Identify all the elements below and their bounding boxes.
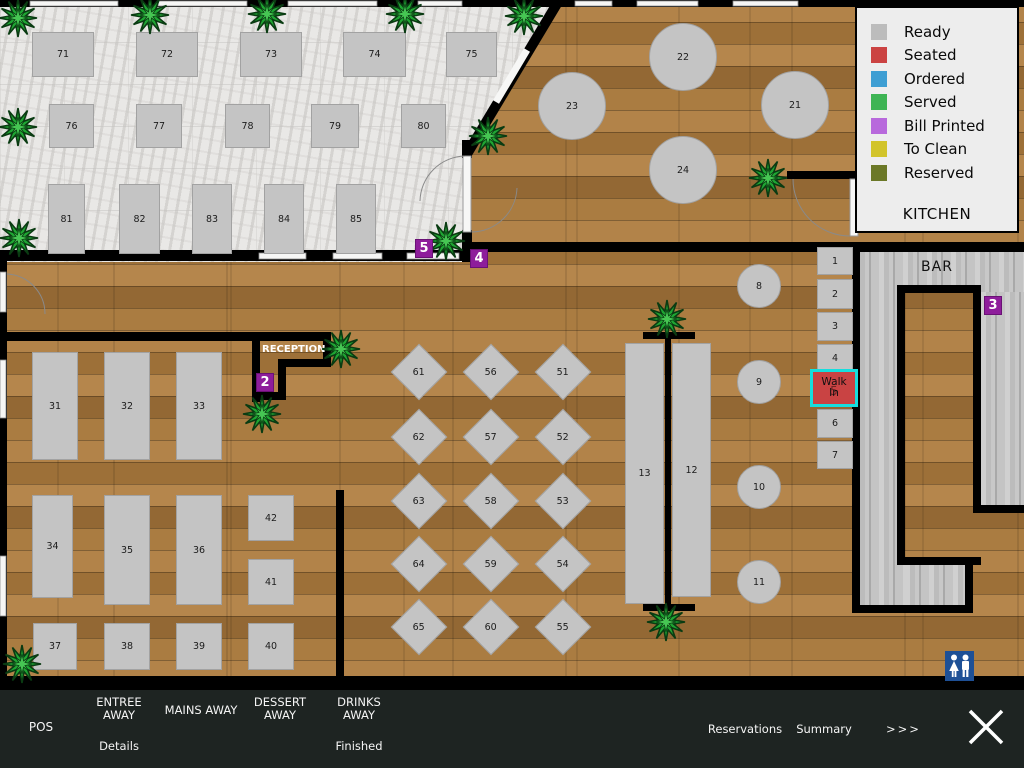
status-color-swatch xyxy=(871,47,887,63)
status-legend-panel: ReadySeatedOrderedServedBill PrintedTo C… xyxy=(855,6,1019,233)
status-color-swatch xyxy=(871,94,887,110)
table-24[interactable]: 24 xyxy=(649,136,717,204)
plant-icon xyxy=(503,0,545,37)
pos-button[interactable]: POS xyxy=(14,721,68,734)
table-number: 51 xyxy=(557,367,569,378)
table-number: 10 xyxy=(753,482,765,493)
table-number: 84 xyxy=(278,214,290,225)
toolbar: POS ENTREE AWAY Details MAINS AWAY DESSE… xyxy=(0,690,1024,768)
legend-item-label: Ordered xyxy=(904,70,965,88)
legend-item-label: To Clean xyxy=(904,140,967,158)
table-number: 12 xyxy=(685,465,697,476)
entree-away-button[interactable]: ENTREE AWAY xyxy=(86,696,152,722)
section-marker-5[interactable]: 5 xyxy=(415,239,433,258)
table-6[interactable]: 6 xyxy=(817,409,853,438)
table-number: 41 xyxy=(265,577,277,588)
table-40[interactable]: 40 xyxy=(248,623,294,670)
table-number: 83 xyxy=(206,214,218,225)
table-number: 40 xyxy=(265,641,277,652)
table-number: 59 xyxy=(485,559,497,570)
table-number: 52 xyxy=(557,432,569,443)
table-number: 21 xyxy=(789,100,801,111)
table-7[interactable]: 7 xyxy=(817,441,853,469)
reservations-button[interactable]: Reservations xyxy=(700,723,790,736)
table-72[interactable]: 72 xyxy=(136,32,198,77)
plant-icon xyxy=(241,393,283,435)
plant-icon xyxy=(645,601,687,643)
table-38[interactable]: 38 xyxy=(104,623,150,670)
table-number: 73 xyxy=(265,49,277,60)
section-marker-2[interactable]: 2 xyxy=(256,373,274,392)
table-number: 39 xyxy=(193,641,205,652)
plant-icon xyxy=(0,0,39,39)
table-74[interactable]: 74 xyxy=(343,32,406,77)
table-23[interactable]: 23 xyxy=(538,72,606,140)
table-number: 74 xyxy=(368,49,380,60)
table-number: 32 xyxy=(121,401,133,412)
table-75[interactable]: 75 xyxy=(446,32,497,77)
table-number: 35 xyxy=(121,545,133,556)
table-36[interactable]: 36 xyxy=(176,495,222,605)
table-number: 24 xyxy=(677,165,689,176)
table-number: 77 xyxy=(153,121,165,132)
legend-item-label: Seated xyxy=(904,46,957,64)
bar-area-label: BAR xyxy=(857,259,1017,275)
table-11[interactable]: 11 xyxy=(737,560,781,604)
table-number: 85 xyxy=(350,214,362,225)
table-number: 54 xyxy=(557,559,569,570)
table-41[interactable]: 41 xyxy=(248,559,294,605)
finished-button[interactable]: Finished xyxy=(325,740,393,753)
section-marker-3[interactable]: 3 xyxy=(984,296,1002,315)
legend-item-label: Bill Printed xyxy=(904,117,985,135)
plant-icon xyxy=(0,217,40,259)
table-number: 11 xyxy=(753,577,765,588)
status-color-swatch xyxy=(871,165,887,181)
kitchen-label: KITCHEN xyxy=(857,205,1017,223)
table-71[interactable]: 71 xyxy=(32,32,94,77)
table-number: 2 xyxy=(832,289,838,300)
table-number: 42 xyxy=(265,513,277,524)
table-number: 55 xyxy=(557,622,569,633)
table-73[interactable]: 73 xyxy=(240,32,302,77)
table-number: 64 xyxy=(413,559,425,570)
table-number: 60 xyxy=(485,622,497,633)
table-12[interactable]: 12 xyxy=(672,343,711,597)
table-5-walk-in[interactable]: 5 Walk In xyxy=(810,369,858,407)
table-number: 62 xyxy=(413,432,425,443)
table-22[interactable]: 22 xyxy=(649,23,717,91)
table-number: 36 xyxy=(193,545,205,556)
restroom-icon xyxy=(945,651,974,681)
plant-icon xyxy=(320,328,362,370)
table-85[interactable]: 85 xyxy=(336,184,376,254)
table-number: 38 xyxy=(121,641,133,652)
table-number: 7 xyxy=(832,450,838,461)
walk-in-table-number: 5 xyxy=(830,386,838,397)
legend-item-reserved: Reserved xyxy=(871,161,1017,185)
table-39[interactable]: 39 xyxy=(176,623,222,670)
plant-icon xyxy=(129,0,171,36)
table-number: 9 xyxy=(756,377,762,388)
legend-item-seated: Seated xyxy=(871,44,1017,68)
status-color-swatch xyxy=(871,71,887,87)
legend-item-served: Served xyxy=(871,91,1017,115)
floor-plan-screen: BAR RECEPTION 71727374757677787980818283… xyxy=(0,0,1024,768)
table-10[interactable]: 10 xyxy=(737,465,781,509)
legend-item-to-clean: To Clean xyxy=(871,138,1017,162)
table-number: 37 xyxy=(49,641,61,652)
table-number: 75 xyxy=(465,49,477,60)
table-3[interactable]: 3 xyxy=(817,312,853,341)
table-33[interactable]: 33 xyxy=(176,352,222,460)
table-35[interactable]: 35 xyxy=(104,495,150,605)
table-number: 57 xyxy=(485,432,497,443)
table-13[interactable]: 13 xyxy=(625,343,664,604)
table-number: 53 xyxy=(557,496,569,507)
legend-items: ReadySeatedOrderedServedBill PrintedTo C… xyxy=(857,8,1017,185)
table-number: 8 xyxy=(756,281,762,292)
table-number: 72 xyxy=(161,49,173,60)
plant-icon xyxy=(0,106,39,148)
table-32[interactable]: 32 xyxy=(104,352,150,460)
table-number: 56 xyxy=(485,367,497,378)
table-number: 4 xyxy=(832,353,838,364)
status-color-swatch xyxy=(871,118,887,134)
table-number: 81 xyxy=(60,214,72,225)
table-80[interactable]: 80 xyxy=(401,104,446,148)
drinks-away-button[interactable]: DRINKS AWAY xyxy=(325,696,393,722)
more-button[interactable]: >>> xyxy=(876,723,931,736)
table-number: 79 xyxy=(329,121,341,132)
table-number: 34 xyxy=(46,541,58,552)
table-number: 33 xyxy=(193,401,205,412)
status-color-swatch xyxy=(871,141,887,157)
table-number: 71 xyxy=(57,49,69,60)
summary-button[interactable]: Summary xyxy=(790,723,858,736)
legend-item-label: Reserved xyxy=(904,164,974,182)
table-83[interactable]: 83 xyxy=(192,184,232,254)
plant-icon xyxy=(384,0,426,35)
table-9[interactable]: 9 xyxy=(737,360,781,404)
table-82[interactable]: 82 xyxy=(119,184,160,254)
legend-item-ready: Ready xyxy=(871,20,1017,44)
legend-item-bill-printed: Bill Printed xyxy=(871,114,1017,138)
plant-icon xyxy=(467,115,509,157)
table-number: 3 xyxy=(832,321,838,332)
status-color-swatch xyxy=(871,24,887,40)
table-84[interactable]: 84 xyxy=(264,184,304,254)
table-81[interactable]: 81 xyxy=(48,184,85,254)
table-76[interactable]: 76 xyxy=(49,104,94,148)
table-79[interactable]: 79 xyxy=(311,104,359,148)
table-number: 13 xyxy=(638,468,650,479)
table-number: 1 xyxy=(832,256,838,267)
dessert-away-button[interactable]: DESSERT AWAY xyxy=(246,696,314,722)
table-78[interactable]: 78 xyxy=(225,104,270,148)
table-number: 78 xyxy=(241,121,253,132)
table-number: 65 xyxy=(413,622,425,633)
table-31[interactable]: 31 xyxy=(32,352,78,460)
table-21[interactable]: 21 xyxy=(761,71,829,139)
table-8[interactable]: 8 xyxy=(737,264,781,308)
section-marker-4[interactable]: 4 xyxy=(470,249,488,268)
details-button[interactable]: Details xyxy=(86,740,152,753)
table-number: 6 xyxy=(832,418,838,429)
table-number: 23 xyxy=(566,101,578,112)
table-number: 80 xyxy=(417,121,429,132)
close-icon[interactable] xyxy=(966,709,1006,745)
table-number: 63 xyxy=(413,496,425,507)
reception-area-label: RECEPTION xyxy=(262,344,322,355)
table-42[interactable]: 42 xyxy=(248,495,294,541)
legend-item-label: Ready xyxy=(904,23,951,41)
table-1[interactable]: 1 xyxy=(817,247,853,275)
table-77[interactable]: 77 xyxy=(136,104,182,148)
table-2[interactable]: 2 xyxy=(817,279,853,309)
table-34[interactable]: 34 xyxy=(32,495,73,598)
plant-icon xyxy=(246,0,288,35)
plant-icon xyxy=(747,157,789,199)
plant-icon xyxy=(646,298,688,340)
legend-item-ordered: Ordered xyxy=(871,67,1017,91)
table-number: 82 xyxy=(133,214,145,225)
legend-item-label: Served xyxy=(904,93,957,111)
table-number: 58 xyxy=(485,496,497,507)
mains-away-button[interactable]: MAINS AWAY xyxy=(156,704,246,717)
table-number: 61 xyxy=(413,367,425,378)
table-number: 22 xyxy=(677,52,689,63)
table-number: 31 xyxy=(49,401,61,412)
table-number: 76 xyxy=(65,121,77,132)
plant-icon xyxy=(1,643,43,685)
